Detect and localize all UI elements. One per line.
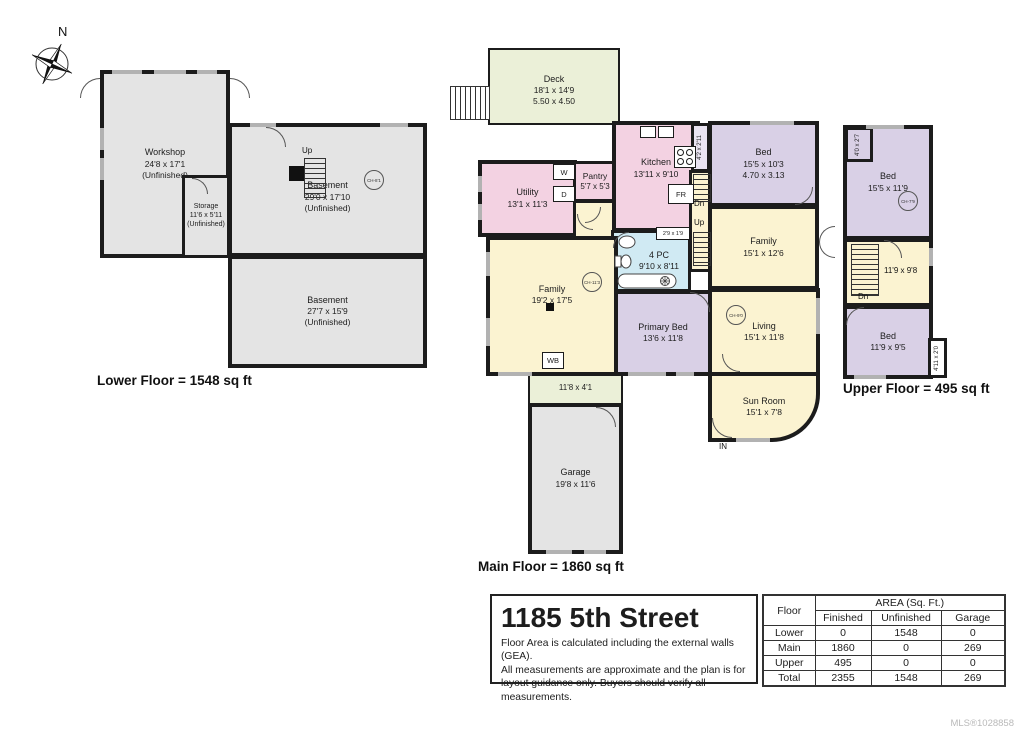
area-table-floor-header: Floor (763, 595, 815, 626)
ceiling-height-badge: CH-11'3 (582, 272, 602, 292)
room-kitchen: Kitchen 13'11 x 9'10 (612, 121, 700, 232)
door-arc (80, 78, 100, 98)
stairs-up-label: Up (302, 146, 312, 155)
stairs-up-main (693, 232, 711, 266)
ceiling-height-badge: CH-7'9 (898, 191, 918, 211)
room-dims: 24'8 x 17'1 (145, 159, 186, 170)
cell-floor: Upper (763, 656, 815, 671)
room-note: (Unfinished) (187, 221, 225, 230)
stairs-down-label: Dn (694, 199, 704, 208)
window (929, 248, 933, 266)
main-floor-label: Main Floor = 1860 sq ft (478, 559, 624, 574)
kitchen-sink (640, 126, 656, 138)
window (854, 375, 886, 379)
table-row: Total 2355 1548 269 (763, 671, 1005, 687)
window (197, 70, 217, 74)
window (478, 204, 482, 220)
room-label: Sun Room (743, 396, 786, 408)
room-dims: 27'7 x 15'9 (307, 306, 348, 317)
room-family-rear: Family 15'1 x 12'6 (708, 205, 819, 290)
window (498, 372, 532, 376)
window (486, 252, 490, 276)
cell-finished: 2355 (815, 671, 871, 687)
area-table-col-garage: Garage (941, 611, 1005, 626)
address-title: 1185 5th Street (501, 602, 747, 634)
window (250, 123, 276, 127)
ceiling-height-badge: CH-8'1 (364, 170, 384, 190)
window (816, 298, 820, 334)
room-dims-metric: 4.70 x 3.13 (742, 170, 784, 181)
room-label: Bed (880, 171, 896, 183)
disclaimer-line: Floor Area is calculated including the e… (501, 637, 747, 664)
stairs-down-upper (851, 244, 879, 296)
room-note: (Unfinished) (305, 317, 351, 328)
room-label: Workshop (145, 147, 185, 159)
cell-unfinished: 1548 (871, 671, 941, 687)
room-dims: 13'1 x 11'3 (508, 199, 548, 210)
stove-icon (674, 146, 696, 168)
room-basement-upper: Basement 29'0 x 17'10 (Unfinished) (228, 123, 427, 257)
disclaimer-line: All measurements are approximate and the… (501, 664, 747, 677)
room-label: Kitchen (641, 157, 671, 169)
room-label: Family (539, 284, 566, 296)
room-dims: 15'5 x 10'3 (743, 159, 784, 170)
window (478, 176, 482, 192)
cell-floor: Main (763, 641, 815, 656)
room-label: Utility (517, 187, 539, 199)
deck-stairs (450, 86, 490, 120)
cell-garage: 0 (941, 626, 1005, 641)
window (750, 121, 794, 125)
room-dims: 15'1 x 12'6 (743, 248, 784, 259)
table-row: Upper 495 0 0 (763, 656, 1005, 671)
landing-dims: 11'9 x 9'8 (884, 266, 917, 275)
compass-north-label: N (58, 24, 67, 39)
room-dims: 13'11 x 9'10 (634, 169, 679, 180)
cell-garage: 269 (941, 671, 1005, 687)
chimney-block (546, 303, 554, 311)
stairs-up-basement (304, 158, 326, 198)
window (866, 125, 904, 129)
room-deck: Deck 18'1 x 14'9 5.50 x 4.50 (488, 48, 620, 125)
window (736, 438, 770, 442)
window (584, 550, 606, 554)
ceiling-height-badge: CH-9'0 (726, 305, 746, 325)
table-row: Lower 0 1548 0 (763, 626, 1005, 641)
room-dims: 15'1 x 11'8 (744, 332, 784, 343)
room-label: Storage (194, 203, 219, 212)
closet-dims: 4'0 x 2'7 (855, 134, 863, 156)
fridge-box: FR (668, 184, 694, 204)
chimney-block (289, 166, 304, 181)
walkway-dims: 11'8 x 4'1 (559, 383, 592, 393)
area-table-col-finished: Finished (815, 611, 871, 626)
closet-dims: 4'2 x 2'11 (697, 135, 705, 160)
room-label: Deck (544, 74, 565, 86)
window (486, 318, 490, 346)
door-arc (819, 242, 835, 258)
room-dims: 13'6 x 11'8 (643, 333, 683, 344)
cell-garage: 0 (941, 656, 1005, 671)
room-dims: 5'7 x 5'3 (580, 182, 609, 192)
room-dims: 11'9 x 9'5 (870, 342, 905, 353)
room-basement-lower: Basement 27'7 x 15'9 (Unfinished) (228, 255, 427, 368)
cell-finished: 1860 (815, 641, 871, 656)
room-label: Living (752, 321, 776, 333)
cell-unfinished: 0 (871, 656, 941, 671)
window (100, 128, 104, 150)
room-pantry: Pantry 5'7 x 5'3 (573, 161, 617, 202)
washer-box: W (553, 164, 575, 180)
walkway: 11'8 x 4'1 (528, 372, 623, 405)
mls-number: MLS®1028858 (930, 718, 1014, 729)
window (676, 372, 694, 376)
cell-garage: 269 (941, 641, 1005, 656)
room-dims: 18'1 x 14'9 (534, 85, 575, 96)
door-arc (819, 226, 835, 242)
cell-unfinished: 0 (871, 641, 941, 656)
area-table-area-header: AREA (Sq. Ft.) (815, 595, 1005, 611)
dryer-box: D (553, 186, 575, 202)
room-label: Pantry (583, 171, 608, 182)
window (100, 158, 104, 180)
door-arc (230, 78, 250, 98)
cell-finished: 0 (815, 626, 871, 641)
cell-floor: Lower (763, 626, 815, 641)
bath-fixtures-icon (613, 232, 689, 290)
stairs-up-label: Up (694, 218, 704, 227)
area-table-col-unfinished: Unfinished (871, 611, 941, 626)
cell-finished: 495 (815, 656, 871, 671)
room-dims: 15'1 x 7'8 (746, 407, 782, 418)
window (628, 372, 666, 376)
closet-dims: 4'11 x 2'0 (934, 346, 942, 371)
window (546, 550, 572, 554)
area-table: Floor AREA (Sq. Ft.) Finished Unfinished… (762, 594, 1006, 687)
entry-label: IN (719, 442, 727, 451)
cell-floor: Total (763, 671, 815, 687)
stairs-down-label: Dn (858, 292, 868, 301)
wood-burner-box: WB (542, 352, 564, 369)
room-dims: 19'8 x 11'6 (556, 479, 596, 490)
room-label: Basement (307, 295, 348, 307)
window (154, 70, 186, 74)
compass-rose-icon (28, 38, 78, 90)
lower-floor-label: Lower Floor = 1548 sq ft (97, 373, 252, 388)
room-dims-metric: 5.50 x 4.50 (533, 96, 575, 107)
room-label: Bed (880, 331, 896, 343)
cell-unfinished: 1548 (871, 626, 941, 641)
title-block: 1185 5th Street Floor Area is calculated… (490, 594, 758, 684)
room-label: Primary Bed (638, 322, 688, 334)
room-label: Family (750, 236, 777, 248)
table-row: Main 1860 0 269 (763, 641, 1005, 656)
room-label: Bed (755, 147, 771, 159)
upper-floor-label: Upper Floor = 495 sq ft (843, 381, 990, 396)
window (380, 123, 408, 127)
closet-rear-upper: 4'11 x 2'0 (928, 338, 947, 378)
disclaimer-line: layout guidance only. Buyers should veri… (501, 677, 747, 704)
window (112, 70, 142, 74)
room-dims: 11'6 x 5'11 (190, 212, 222, 221)
stairs-down-main (693, 174, 711, 202)
room-note: (Unfinished) (305, 203, 351, 214)
room-label: Garage (560, 467, 590, 479)
floorplan-canvas: N Workshop 24'8 x 17'1 (Unfinished) Base… (0, 0, 1024, 739)
closet-front-upper: 4'0 x 2'7 (845, 127, 873, 162)
kitchen-sink (658, 126, 674, 138)
